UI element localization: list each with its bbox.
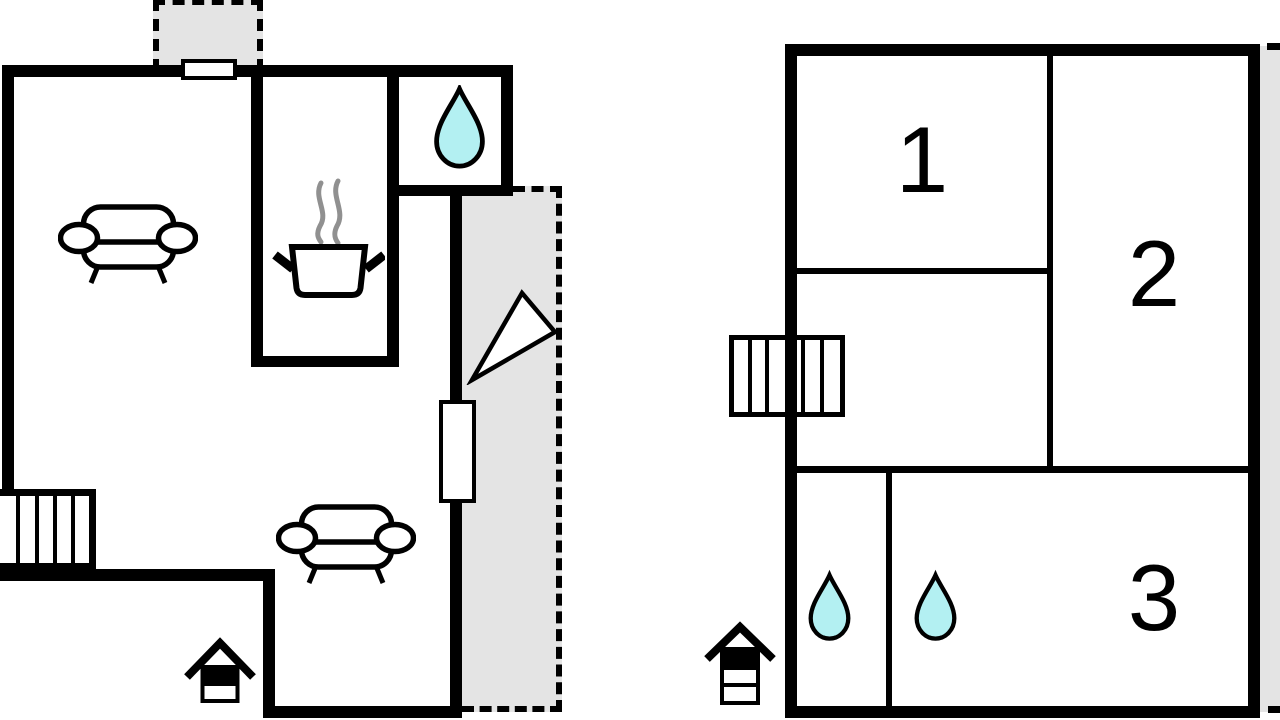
wall-middle-horizontal — [797, 466, 1248, 473]
floor-plan-canvas: 1 2 3 — [0, 0, 1280, 720]
sofa-icon — [58, 204, 198, 284]
water-drop-icon — [912, 564, 959, 649]
room-label-3: 3 — [1104, 550, 1204, 646]
entrance-house-icon — [703, 621, 777, 705]
steam-line — [318, 183, 323, 242]
terrace-edge-area — [1260, 46, 1280, 712]
wall-kitchen-bottom — [251, 356, 399, 367]
wall-kitchen-right — [387, 65, 399, 367]
terrace-right-top-dashed-edge — [513, 186, 562, 192]
wall-bathrooms-divider — [886, 466, 892, 712]
water-drop-icon — [806, 564, 853, 649]
entrance-house-icon — [184, 637, 256, 705]
terrace-right-area — [462, 186, 562, 712]
steam-line — [335, 181, 340, 243]
room-label-2: 2 — [1104, 226, 1204, 322]
window-icon — [181, 59, 237, 80]
wall-bottom — [785, 706, 1260, 718]
wall-kitchen-left — [251, 65, 263, 367]
room-label-1: 1 — [872, 112, 972, 208]
wall-left — [785, 44, 797, 718]
wall-right — [1248, 44, 1260, 718]
wall-room1-bottom — [797, 268, 1053, 274]
dash-segment — [1268, 706, 1280, 713]
wall-left — [2, 65, 14, 493]
window-icon — [439, 400, 476, 503]
dash-segment — [1267, 43, 1280, 50]
wall-bottom-extension — [263, 706, 462, 718]
wall-room1-right — [1047, 44, 1053, 473]
cooking-pot-icon — [265, 178, 385, 298]
wall-extension-left — [263, 569, 275, 718]
wall-bathroom-right — [501, 65, 513, 196]
wall-top — [785, 44, 1260, 56]
wall-bottom-left — [0, 569, 275, 581]
stairs-icon — [0, 489, 96, 570]
wall-hall-right-upper — [450, 185, 462, 402]
water-drop-icon — [430, 85, 489, 169]
wall-hall-right-lower — [450, 500, 462, 718]
door-swing-icon — [464, 285, 560, 385]
sofa-icon — [276, 504, 416, 584]
